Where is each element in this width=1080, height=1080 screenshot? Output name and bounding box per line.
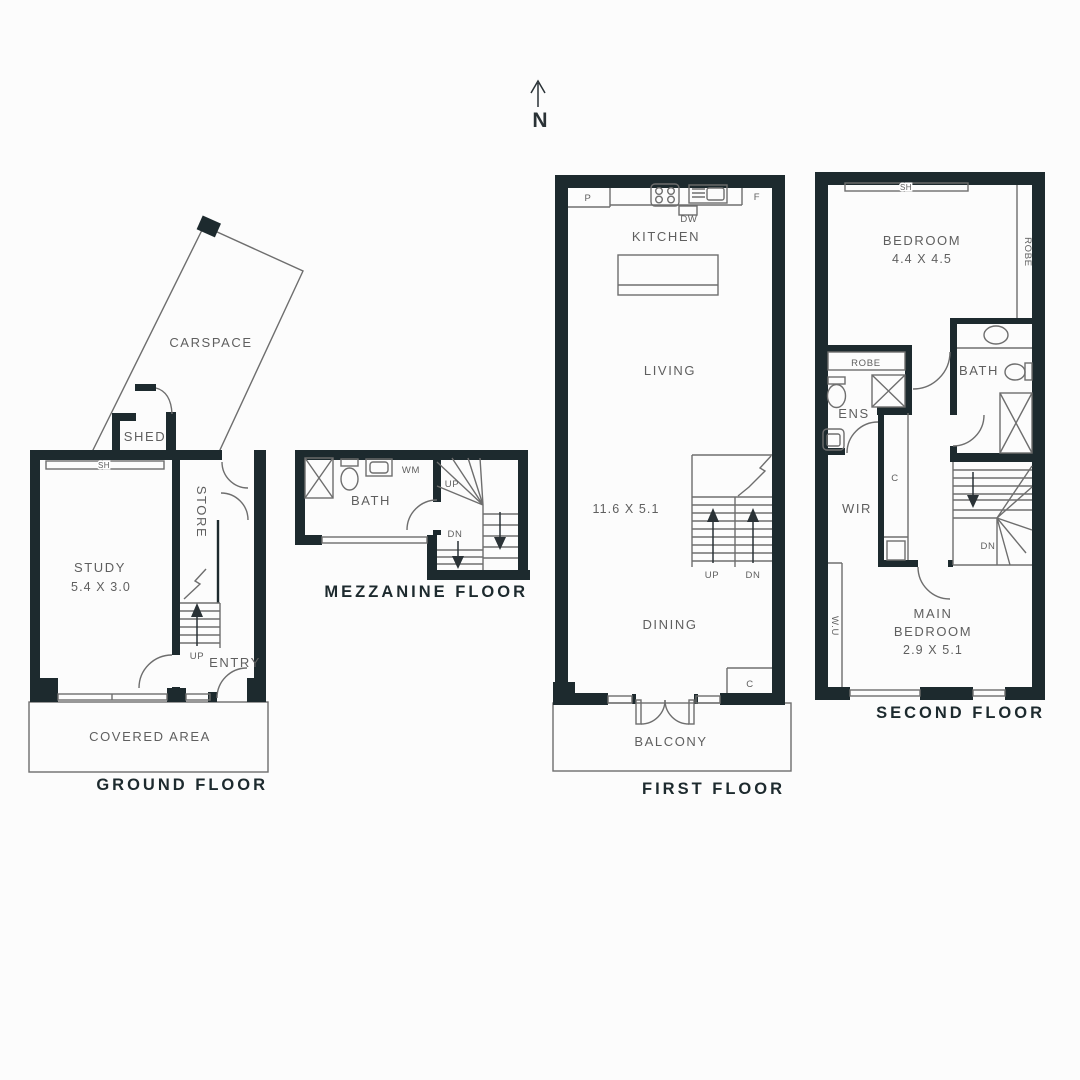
- fridge-label: F: [754, 192, 761, 203]
- pantry-label: P: [584, 193, 591, 204]
- stair-winder: [997, 466, 1032, 565]
- door-arc: [953, 415, 984, 446]
- first-stairs: [692, 455, 772, 567]
- carspace-label: CARSPACE: [169, 335, 252, 350]
- door-arc: [217, 668, 247, 698]
- toilet-icon: [1005, 364, 1025, 380]
- wm-label: WM: [402, 465, 420, 476]
- shower-cross: [305, 458, 333, 498]
- cupboard-label: C: [891, 473, 899, 484]
- window: [850, 690, 920, 696]
- kitchen-counter: [568, 188, 742, 207]
- ground-floor-title: GROUND FLOOR: [96, 776, 268, 794]
- ground-floor-plan: SH CARSPACE SHED STUDY 5.4 X 3.0 STORE U…: [29, 216, 303, 794]
- bath-label: BATH: [351, 493, 391, 508]
- first-floor-plan: P DW F KITCHEN LIVING 11.6 X 5.1 UP DN D…: [553, 175, 791, 798]
- break-line-icon: [738, 456, 771, 496]
- up-label: UP: [445, 479, 460, 490]
- burner-icon: [656, 188, 663, 195]
- mezzanine-stairs: [437, 458, 518, 570]
- toilet-tank-icon: [1025, 363, 1032, 380]
- window: [322, 537, 427, 543]
- door-arc: [222, 462, 248, 488]
- down-arrow-head: [967, 495, 979, 508]
- toilet-tank-icon: [341, 459, 358, 466]
- main-bedroom-label-2: BEDROOM: [894, 624, 972, 639]
- burner-icon: [656, 196, 663, 203]
- floorplan-canvas: N SH: [0, 0, 1080, 1080]
- main-bedroom-label-1: MAIN: [914, 606, 953, 621]
- window: [608, 696, 632, 703]
- toilet-icon: [341, 468, 358, 490]
- toilet-tank-icon: [828, 377, 845, 384]
- basin-icon: [984, 326, 1008, 344]
- stair-winder: [437, 458, 483, 570]
- first-windows-doors: [608, 696, 720, 724]
- dining-label: DINING: [642, 617, 697, 632]
- stair-treads: [180, 603, 220, 648]
- living-dimension: 11.6 X 5.1: [592, 502, 659, 516]
- second-bath-fixtures: [957, 326, 1032, 453]
- burner-icon: [668, 188, 675, 195]
- cupboard-shelf: [887, 541, 905, 560]
- break-line-icon: [184, 569, 206, 599]
- store-label: STORE: [194, 486, 209, 539]
- down-arrow-head: [494, 537, 506, 550]
- first-floor-title: FIRST FLOOR: [642, 780, 785, 798]
- shower-cross: [872, 375, 905, 407]
- bedroom-label: BEDROOM: [883, 233, 961, 248]
- second-floor-plan: SH: [815, 172, 1045, 722]
- up-arrow-head: [191, 603, 203, 617]
- floorplan-svg: N SH: [0, 0, 1080, 1080]
- shelf-label: SH: [900, 183, 912, 192]
- door-arc: [407, 500, 437, 530]
- robe-side-label: ROBE: [1022, 237, 1033, 267]
- window: [696, 696, 720, 703]
- sink-drainer: [692, 189, 705, 197]
- cupboard-strip: [884, 413, 908, 560]
- stair-treads: [692, 505, 772, 561]
- shed-door-arc: [156, 388, 172, 414]
- shower-cross: [1000, 393, 1032, 453]
- washing-machine-drum: [370, 462, 388, 473]
- bath-label: BATH: [959, 363, 999, 378]
- toilet-icon: [828, 385, 846, 408]
- entry-label: ENTRY: [209, 655, 261, 670]
- sink-bowl: [707, 188, 724, 200]
- second-floor-title: SECOND FLOOR: [876, 704, 1045, 722]
- mezzanine-floor-plan: BATH WM UP DN MEZZANINE FLOOR: [295, 450, 530, 601]
- up-arrow-head: [707, 508, 719, 522]
- living-label: LIVING: [644, 363, 696, 378]
- mezzanine-bath-fixtures: [305, 458, 392, 498]
- dn-label: DN: [447, 529, 462, 540]
- bedroom-dimension: 4.4 X 4.5: [892, 252, 952, 266]
- basin-bowl: [827, 434, 840, 446]
- main-bedroom-dimension: 2.9 X 5.1: [903, 643, 963, 657]
- up-label: UP: [190, 651, 205, 662]
- island-bench: [618, 255, 718, 295]
- window: [186, 694, 210, 700]
- door-arc: [139, 655, 172, 688]
- mezzanine-floor-title: MEZZANINE FLOOR: [324, 583, 528, 601]
- study-dimension: 5.4 X 3.0: [71, 580, 131, 594]
- dn-label: DN: [980, 541, 995, 552]
- window: [973, 690, 1005, 696]
- wu-label: W.U: [829, 616, 840, 636]
- door-arc: [918, 567, 950, 599]
- dn-arrow-head: [747, 508, 759, 522]
- shed-label: SHED: [124, 429, 167, 444]
- door-arc: [913, 352, 950, 389]
- covered-area-label: COVERED AREA: [89, 729, 211, 744]
- up-label: UP: [705, 570, 720, 581]
- burner-icon: [668, 196, 675, 203]
- shelf-label: SH: [98, 461, 110, 470]
- north-indicator: N: [531, 81, 548, 132]
- ground-stairs: [180, 603, 220, 648]
- dn-label: DN: [745, 570, 760, 581]
- ens-label: ENS: [838, 406, 870, 421]
- kitchen-label: KITCHEN: [632, 229, 700, 244]
- wir-label: WIR: [842, 501, 872, 516]
- cupboard-label: C: [746, 679, 754, 690]
- north-label: N: [532, 109, 547, 132]
- study-label: STUDY: [74, 560, 126, 575]
- down-arrow-head: [452, 556, 464, 569]
- dishwasher-label: DW: [680, 214, 697, 225]
- balcony-label: BALCONY: [634, 734, 707, 749]
- stair-frame: [692, 455, 772, 567]
- robe-box-label: ROBE: [851, 358, 881, 369]
- door-arc: [847, 422, 878, 453]
- ground-windows: [58, 694, 210, 700]
- door-arc: [221, 493, 248, 520]
